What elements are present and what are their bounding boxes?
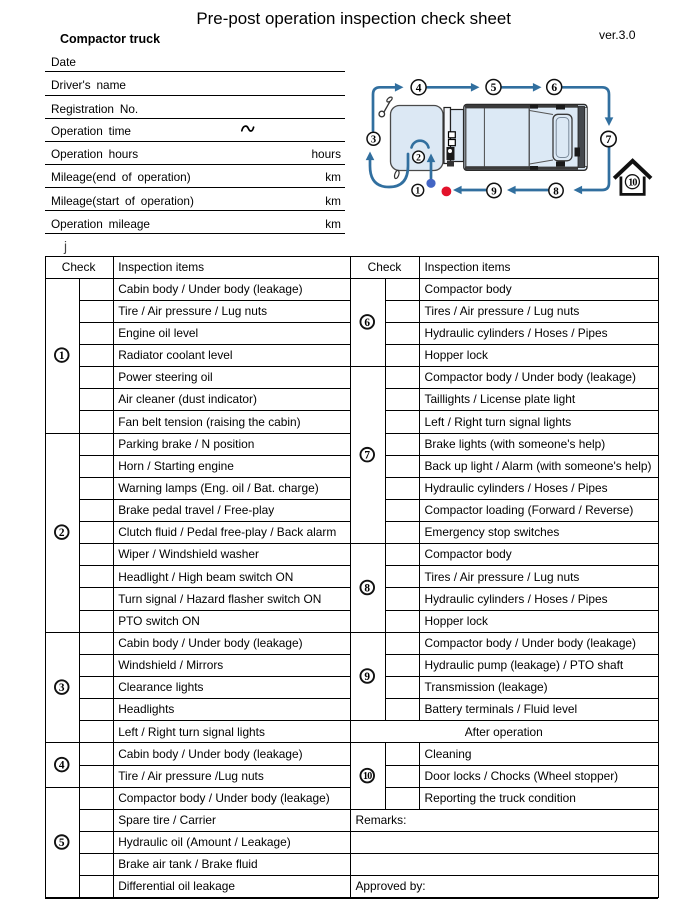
svg-text:5: 5 <box>491 82 497 94</box>
svg-text:3: 3 <box>371 135 376 146</box>
svg-text:6: 6 <box>551 82 557 94</box>
svg-text:4: 4 <box>59 760 65 772</box>
svg-text:2: 2 <box>416 153 421 163</box>
svg-text:7: 7 <box>364 450 370 462</box>
svg-text:9: 9 <box>491 186 497 198</box>
svg-text:9: 9 <box>364 671 370 683</box>
svg-text:1: 1 <box>59 350 65 362</box>
svg-text:10: 10 <box>363 771 372 782</box>
svg-text:5: 5 <box>59 837 65 849</box>
svg-text:4: 4 <box>416 82 422 94</box>
svg-text:10: 10 <box>628 177 637 188</box>
svg-text:3: 3 <box>59 682 65 694</box>
svg-text:2: 2 <box>59 527 65 539</box>
svg-text:8: 8 <box>364 583 370 595</box>
svg-text:6: 6 <box>364 317 370 329</box>
svg-text:7: 7 <box>606 134 612 146</box>
svg-text:1: 1 <box>415 187 420 197</box>
svg-text:8: 8 <box>553 186 559 198</box>
